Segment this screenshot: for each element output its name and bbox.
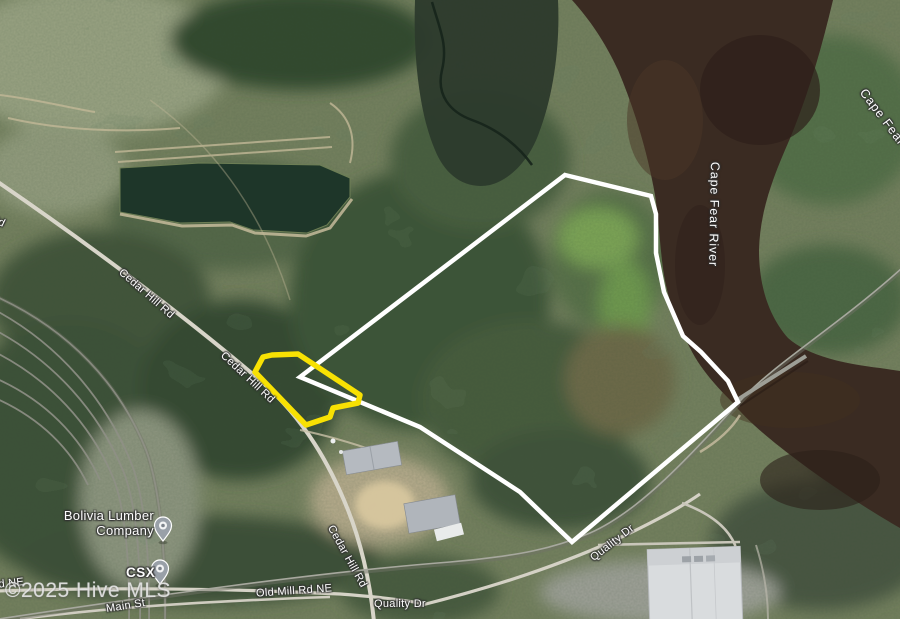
poi-label-bolivia-lumber-company: Bolivia Lumber Company xyxy=(40,509,154,539)
warehouse-large xyxy=(647,546,743,619)
river-label-cape-fear: Cape Fear River xyxy=(706,162,722,267)
road-label-quality-dr-2: Quality Dr xyxy=(374,598,426,611)
mls-watermark: ©2025 Hive MLS xyxy=(5,579,171,603)
satellite-map: Cedar Hill Rd Cedar Hill Rd Cedar Hill R… xyxy=(0,0,900,619)
poi-label-line1: Bolivia Lumber xyxy=(40,509,154,524)
poi-label-line2: Company xyxy=(40,524,154,539)
